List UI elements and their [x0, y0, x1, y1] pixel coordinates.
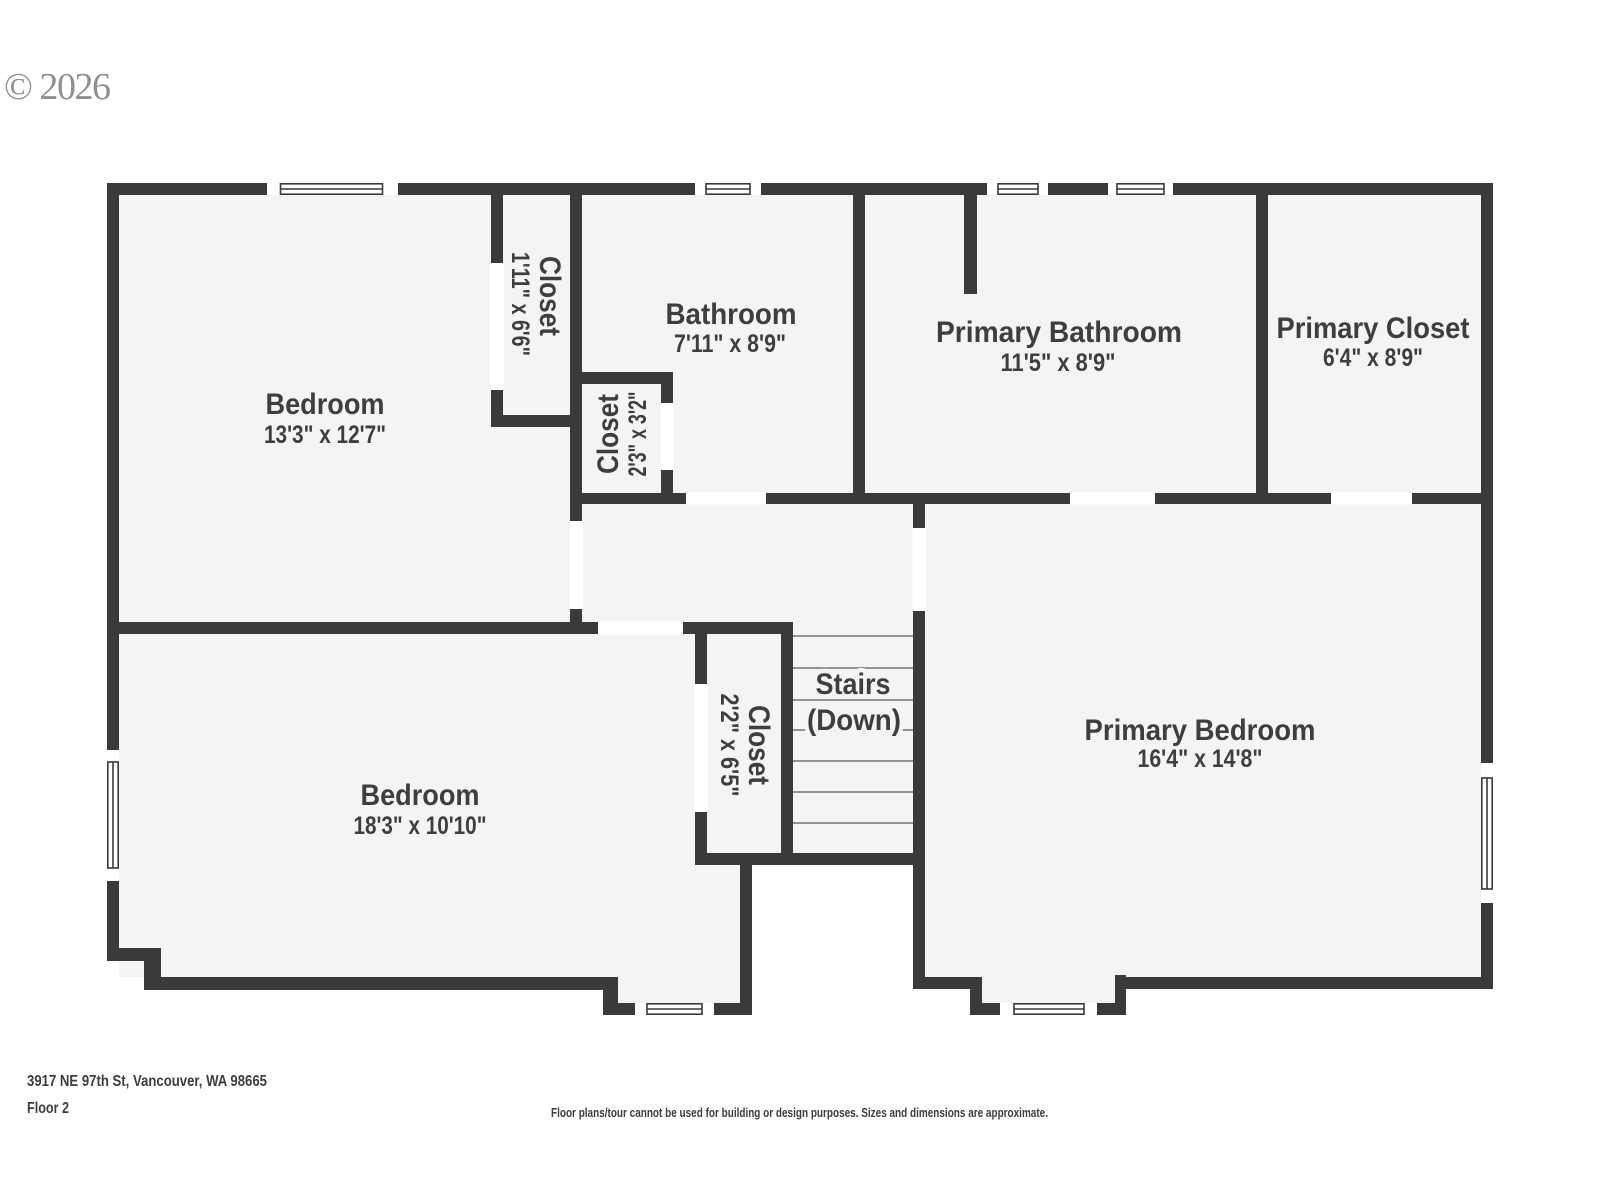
svg-text:7'11" x 8'9": 7'11" x 8'9"	[674, 330, 786, 358]
svg-text:1'11" x 6'6": 1'11" x 6'6"	[506, 252, 534, 356]
svg-text:Closet: Closet	[592, 394, 625, 474]
svg-text:(Down): (Down)	[807, 704, 901, 737]
svg-text:Bedroom: Bedroom	[361, 779, 480, 812]
svg-text:18'3" x 10'10": 18'3" x 10'10"	[354, 812, 487, 840]
svg-text:Primary Bedroom: Primary Bedroom	[1085, 714, 1316, 747]
svg-text:11'5" x 8'9": 11'5" x 8'9"	[1001, 349, 1116, 377]
svg-text:2'2" x 6'5": 2'2" x 6'5"	[715, 694, 743, 797]
svg-text:© 2026: © 2026	[4, 66, 111, 108]
svg-text:6'4" x 8'9": 6'4" x 8'9"	[1323, 344, 1423, 372]
svg-text:3917 NE 97th St, Vancouver, WA: 3917 NE 97th St, Vancouver, WA 98665	[27, 1073, 267, 1090]
svg-text:Stairs: Stairs	[816, 668, 891, 701]
svg-text:Floor 2: Floor 2	[27, 1100, 69, 1117]
svg-text:Primary Closet: Primary Closet	[1277, 312, 1470, 345]
svg-text:Floor plans/tour cannot be use: Floor plans/tour cannot be used for buil…	[551, 1105, 1048, 1120]
svg-text:Bedroom: Bedroom	[266, 388, 385, 421]
svg-text:Bathroom: Bathroom	[666, 298, 797, 331]
svg-text:16'4" x 14'8": 16'4" x 14'8"	[1138, 745, 1263, 773]
svg-text:Closet: Closet	[742, 705, 775, 785]
svg-text:Primary Bathroom: Primary Bathroom	[936, 316, 1182, 349]
svg-text:2'3" x 3'2": 2'3" x 3'2"	[624, 392, 652, 477]
svg-text:13'3" x 12'7": 13'3" x 12'7"	[264, 421, 386, 449]
svg-text:Closet: Closet	[533, 256, 566, 336]
